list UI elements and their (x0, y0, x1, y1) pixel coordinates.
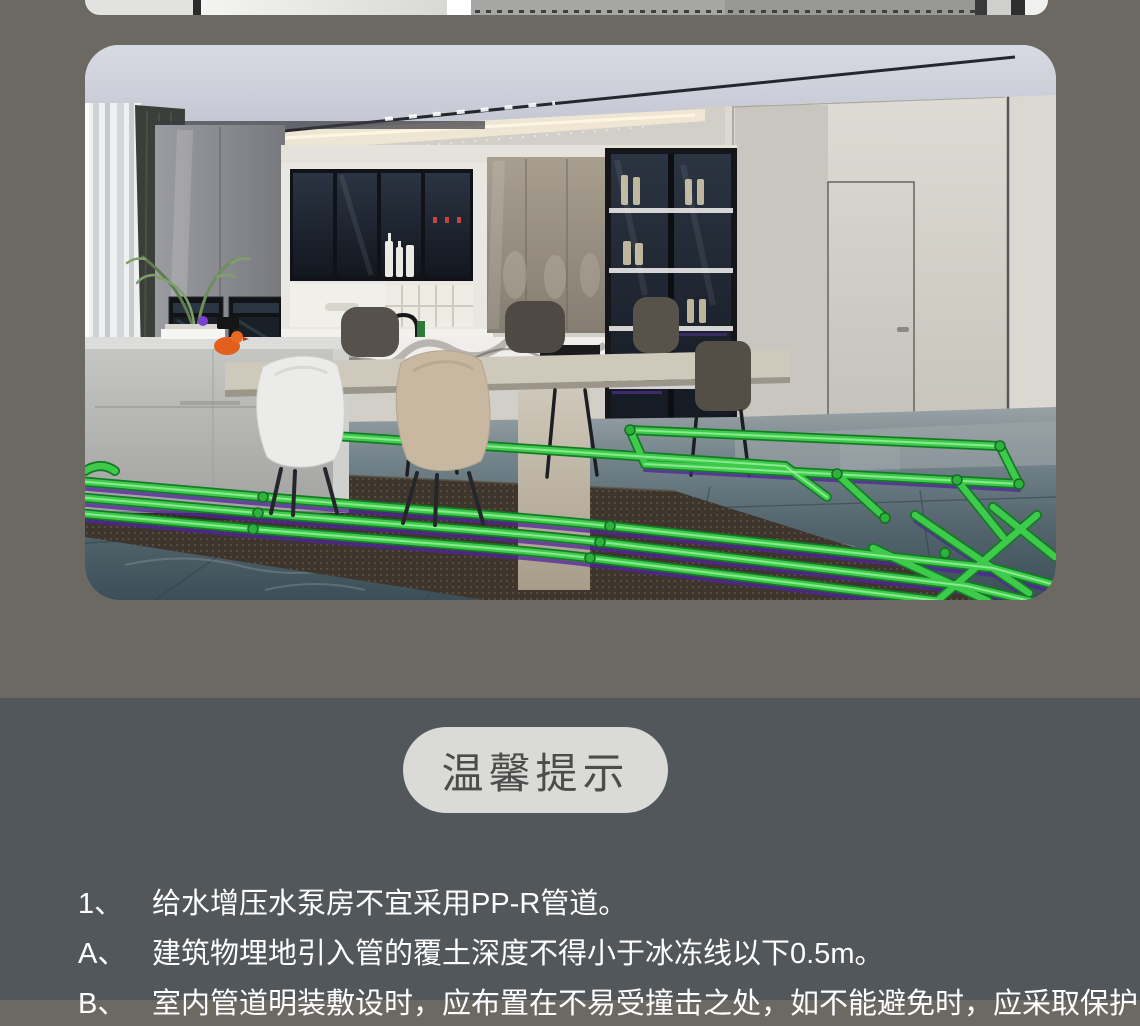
tip-marker: A、 (78, 930, 152, 972)
strip-segment (201, 0, 447, 15)
strip-dotted-line (475, 10, 975, 13)
strip-segment (987, 0, 1011, 15)
strip-segment (975, 0, 987, 15)
tip-line-1: 1、 给水增压水泵房不宜采用PP-R管道。 (78, 876, 1138, 926)
tips-list: 1、 给水增压水泵房不宜采用PP-R管道。 A、 建筑物埋地引入管的覆土深度不得… (78, 876, 1138, 1026)
dark-chair-back (341, 307, 399, 357)
tip-marker: 1、 (78, 880, 152, 922)
strip-segment (1025, 0, 1048, 15)
books (161, 329, 225, 339)
dark-chair-back (505, 301, 565, 353)
tip-line-B: B、 室内管道明装敷设时，应布置在不易受撞击之处，如不能避免时，应采取保护 (78, 976, 1138, 1026)
dark-chair-back (695, 341, 751, 411)
tips-title: 温馨提示 (441, 740, 629, 801)
tip-text: 室内管道明装敷设时，应布置在不易受撞击之处，如不能避免时，应采取保护 (152, 980, 1138, 1022)
tip-text: 给水增压水泵房不宜采用PP-R管道。 (152, 880, 627, 922)
strip-segment (1011, 0, 1025, 15)
strip-segment (193, 0, 201, 15)
door-handle (897, 327, 909, 332)
tip-marker: B、 (78, 980, 152, 1022)
dark-chair-back (633, 297, 679, 353)
tip-text: 建筑物埋地引入管的覆土深度不得小于冰冻线以下0.5m。 (152, 930, 883, 972)
tips-title-pill: 温馨提示 (403, 727, 668, 813)
previous-image-bottom-edge (85, 0, 1048, 15)
strip-segment (85, 0, 195, 15)
strip-segment (447, 0, 471, 15)
door (828, 182, 914, 433)
tip-line-A: A、 建筑物埋地引入管的覆土深度不得小于冰冻线以下0.5m。 (78, 926, 1138, 976)
kitchen-pipes-image (85, 45, 1056, 600)
